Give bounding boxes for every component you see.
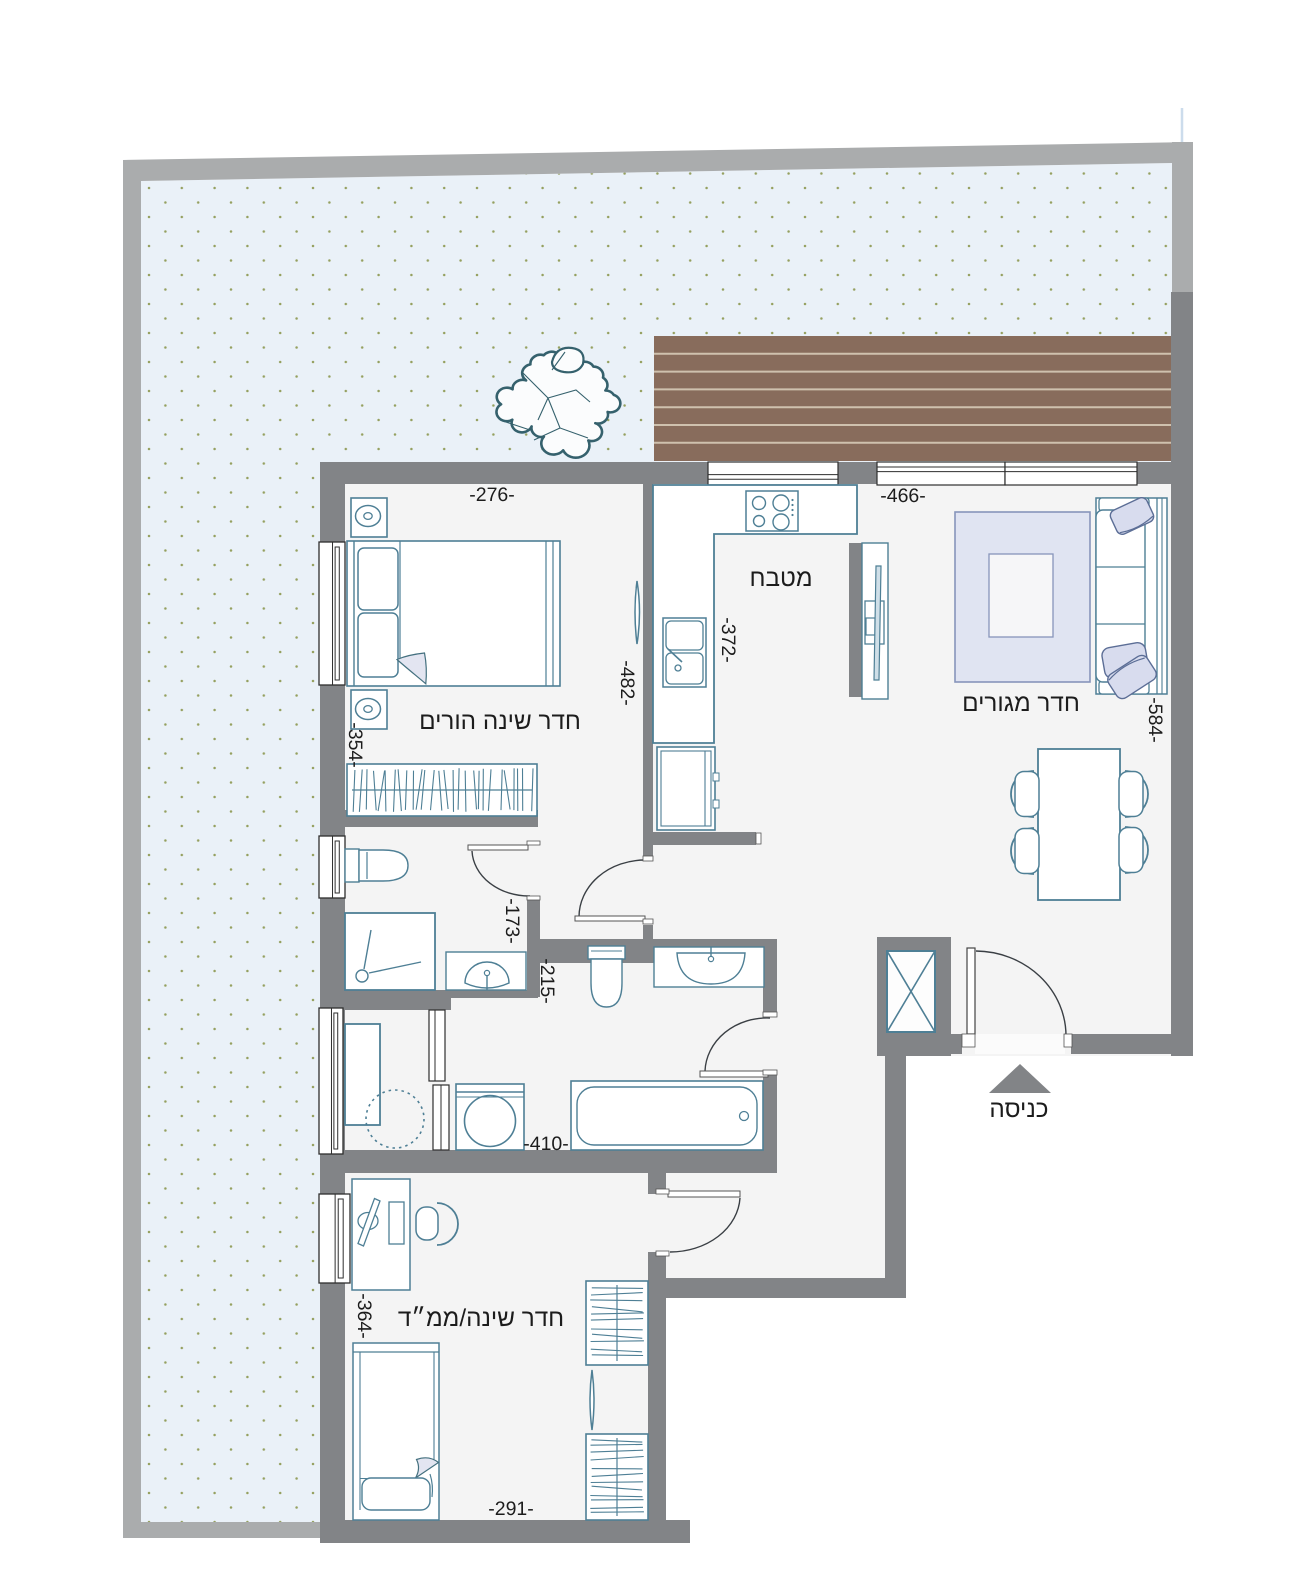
svg-text:-584-: -584- xyxy=(1144,697,1166,743)
svg-text:-364-: -364- xyxy=(353,1293,375,1339)
svg-text:חדר שינה/ממ״ד: חדר שינה/ממ״ד xyxy=(398,1305,564,1332)
svg-text:חדר מגורים: חדר מגורים xyxy=(962,690,1080,717)
svg-text:-291-: -291- xyxy=(488,1498,534,1520)
svg-text:-372-: -372- xyxy=(717,617,739,663)
svg-text:כניסה: כניסה xyxy=(989,1096,1048,1123)
svg-text:חדר שינה הורים: חדר שינה הורים xyxy=(419,708,581,735)
svg-text:-354-: -354- xyxy=(344,722,366,768)
svg-text:-215-: -215- xyxy=(536,958,558,1004)
svg-text:-276-: -276- xyxy=(469,484,515,506)
svg-text:-466-: -466- xyxy=(880,485,926,507)
svg-text:-410-: -410- xyxy=(523,1133,569,1155)
svg-text:-482-: -482- xyxy=(616,660,638,706)
svg-text:-173-: -173- xyxy=(501,898,523,944)
svg-text:מטבח: מטבח xyxy=(749,565,812,592)
